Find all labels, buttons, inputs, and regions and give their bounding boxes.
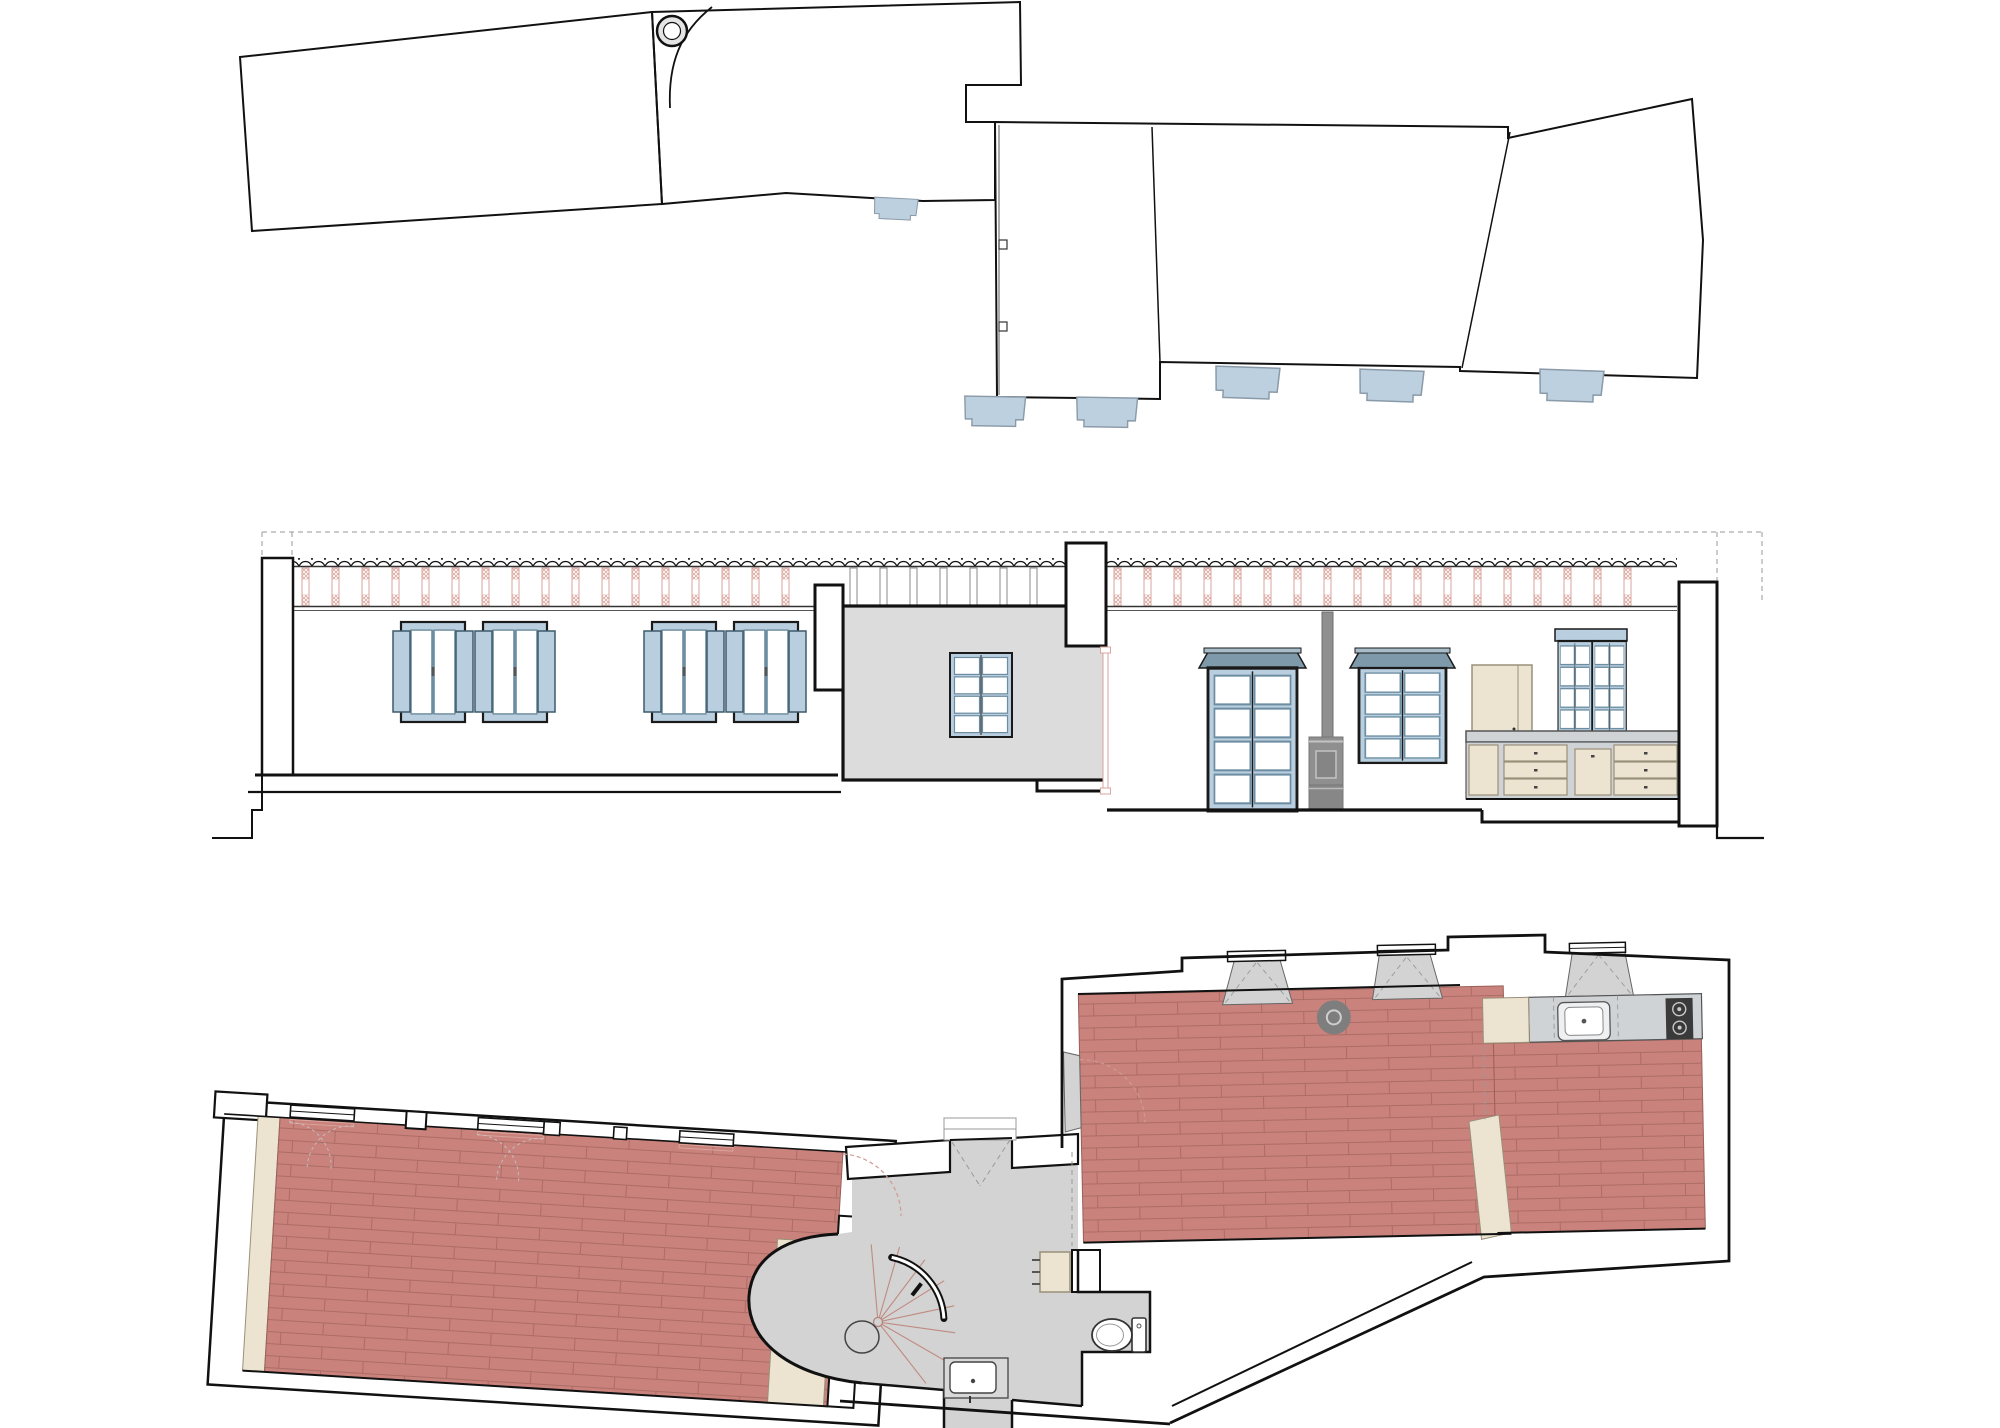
rafter-pink bbox=[512, 568, 519, 606]
rafter-pink bbox=[392, 568, 399, 606]
plinth-step-left bbox=[212, 775, 262, 838]
cornice-window bbox=[1350, 648, 1455, 763]
rafter-pink bbox=[782, 568, 789, 606]
roof-right-wing bbox=[995, 99, 1703, 399]
rafter-plain bbox=[1000, 568, 1007, 606]
rafter-pink bbox=[1144, 568, 1151, 606]
glazed-door bbox=[1199, 648, 1306, 811]
awning-tab bbox=[964, 396, 1025, 427]
rafter-pink bbox=[662, 568, 669, 606]
washbasin bbox=[944, 1358, 1008, 1403]
door-glazing bbox=[1208, 668, 1297, 811]
rafter-pink bbox=[362, 568, 369, 606]
rafter-pink bbox=[1234, 568, 1241, 606]
kitchen-sink bbox=[1558, 1002, 1611, 1041]
rafter-pink bbox=[632, 568, 639, 606]
right-end-column bbox=[1679, 582, 1717, 826]
rafter-pink bbox=[1354, 568, 1361, 606]
rafters-mid bbox=[850, 568, 1037, 606]
roof-plan bbox=[240, 2, 1703, 428]
cross-wing-window bbox=[950, 653, 1012, 737]
rafter-plain bbox=[850, 568, 857, 606]
right-end-plinth bbox=[1679, 826, 1764, 838]
drawer-stack bbox=[1614, 745, 1677, 795]
tile-floor-living-room bbox=[1078, 986, 1508, 1243]
section-elevation bbox=[212, 532, 1764, 838]
rafter-pink bbox=[452, 568, 459, 606]
porch-wall-right bbox=[1012, 1134, 1078, 1168]
rafter-pink bbox=[422, 568, 429, 606]
floor-step-right bbox=[1482, 810, 1700, 822]
rafter-pink bbox=[1624, 568, 1631, 606]
rafter-pink bbox=[602, 568, 609, 606]
awning-tab bbox=[1539, 369, 1604, 402]
rafter-pink bbox=[1294, 568, 1301, 606]
door-niche-block bbox=[1072, 1250, 1100, 1292]
architectural-drawing bbox=[0, 0, 2000, 1428]
wall-pier-small bbox=[613, 1127, 627, 1140]
cross-wing-floor-step bbox=[1037, 780, 1107, 791]
awning-tab bbox=[1215, 366, 1280, 399]
shuttered-windows bbox=[393, 622, 806, 722]
rafters-left bbox=[302, 568, 789, 606]
porch-wall-left bbox=[846, 1140, 950, 1179]
cooktop bbox=[1666, 998, 1694, 1040]
window-niche-kitchen bbox=[1564, 942, 1633, 996]
rafter-pink bbox=[1114, 568, 1121, 606]
rafter-pink bbox=[482, 568, 489, 606]
drawer-stack bbox=[1504, 745, 1567, 795]
rafter-pink bbox=[1414, 568, 1421, 606]
rafter-pink bbox=[542, 568, 549, 606]
door-niche-left bbox=[1064, 1052, 1082, 1132]
rafter-pink bbox=[1534, 568, 1541, 606]
drawing-sheet bbox=[0, 0, 2000, 1428]
rafter-pink bbox=[1384, 568, 1391, 606]
rafter-plain bbox=[970, 568, 977, 606]
window-niche bbox=[1221, 950, 1292, 1004]
rafter-pink bbox=[692, 568, 699, 606]
roof-left-wing bbox=[240, 12, 662, 231]
rafter-pink bbox=[572, 568, 579, 606]
shuttered-window bbox=[644, 622, 724, 722]
tile-floor-left-room bbox=[264, 1117, 843, 1406]
wall-pier bbox=[406, 1111, 427, 1129]
glazed-hutch bbox=[1555, 629, 1627, 733]
rafters-right bbox=[1114, 568, 1631, 606]
base-door-left bbox=[1469, 745, 1498, 795]
rafter-pink bbox=[722, 568, 729, 606]
rafter-plain bbox=[880, 568, 887, 606]
cornice-window-glazing bbox=[1359, 668, 1446, 763]
kitchen-beige-cabinet bbox=[1482, 997, 1529, 1043]
toilet bbox=[1092, 1318, 1146, 1352]
roof-awnings bbox=[874, 197, 1604, 427]
rafter-pink bbox=[1564, 568, 1571, 606]
rafter-pink bbox=[1174, 568, 1181, 606]
floor-plan bbox=[198, 935, 1729, 1428]
kitchen-elevation bbox=[1466, 629, 1679, 799]
rafter-pink bbox=[1444, 568, 1451, 606]
rafter-pink bbox=[1324, 568, 1331, 606]
gutter-bracket bbox=[999, 322, 1007, 331]
roof-link-outline bbox=[652, 2, 1021, 204]
left-pilaster bbox=[262, 558, 293, 775]
kitchen-counter-plan bbox=[1482, 994, 1702, 1044]
shuttered-window bbox=[726, 622, 806, 722]
kitchen-upper-cabinet bbox=[1472, 665, 1532, 733]
tile-floor-kitchen bbox=[1493, 1039, 1705, 1233]
cross-wing-left-column bbox=[815, 585, 843, 690]
stove-pipe bbox=[1322, 612, 1333, 737]
stair-newel-step bbox=[845, 1321, 879, 1353]
awning-tab bbox=[874, 197, 919, 220]
rafter-pink bbox=[1204, 568, 1211, 606]
rafter-plain bbox=[910, 568, 917, 606]
door-cornice bbox=[1199, 652, 1306, 668]
right-wing-inner-diagonal bbox=[1172, 1262, 1472, 1406]
gutter-bracket bbox=[999, 240, 1007, 249]
rafter-plain bbox=[1030, 568, 1037, 606]
awning-tab bbox=[1359, 369, 1424, 402]
eave-tile-course bbox=[293, 558, 1677, 566]
awning-tab bbox=[1076, 397, 1137, 428]
door-cornice-cap bbox=[1204, 648, 1301, 653]
stair-center bbox=[874, 1318, 883, 1327]
rafter-pink bbox=[332, 568, 339, 606]
countertop bbox=[1466, 731, 1679, 742]
rafter-pink bbox=[1474, 568, 1481, 606]
rafter-pink bbox=[302, 568, 309, 606]
rafter-pink bbox=[1504, 568, 1511, 606]
chimney-flue bbox=[664, 23, 681, 40]
roof-plane-seam-2 bbox=[1152, 127, 1160, 362]
plan-right-wing-interior bbox=[1061, 939, 1706, 1248]
cross-wing-right-column bbox=[1066, 543, 1106, 646]
rafter-plain bbox=[940, 568, 947, 606]
wood-stove bbox=[1309, 737, 1343, 810]
rafter-pink bbox=[752, 568, 759, 606]
shuttered-window bbox=[393, 622, 473, 722]
rafter-pink bbox=[1594, 568, 1601, 606]
shutter-pocket bbox=[543, 1122, 560, 1136]
shuttered-window bbox=[475, 622, 555, 722]
roof-plane-seam bbox=[1462, 132, 1510, 368]
rafter-pink bbox=[1264, 568, 1271, 606]
